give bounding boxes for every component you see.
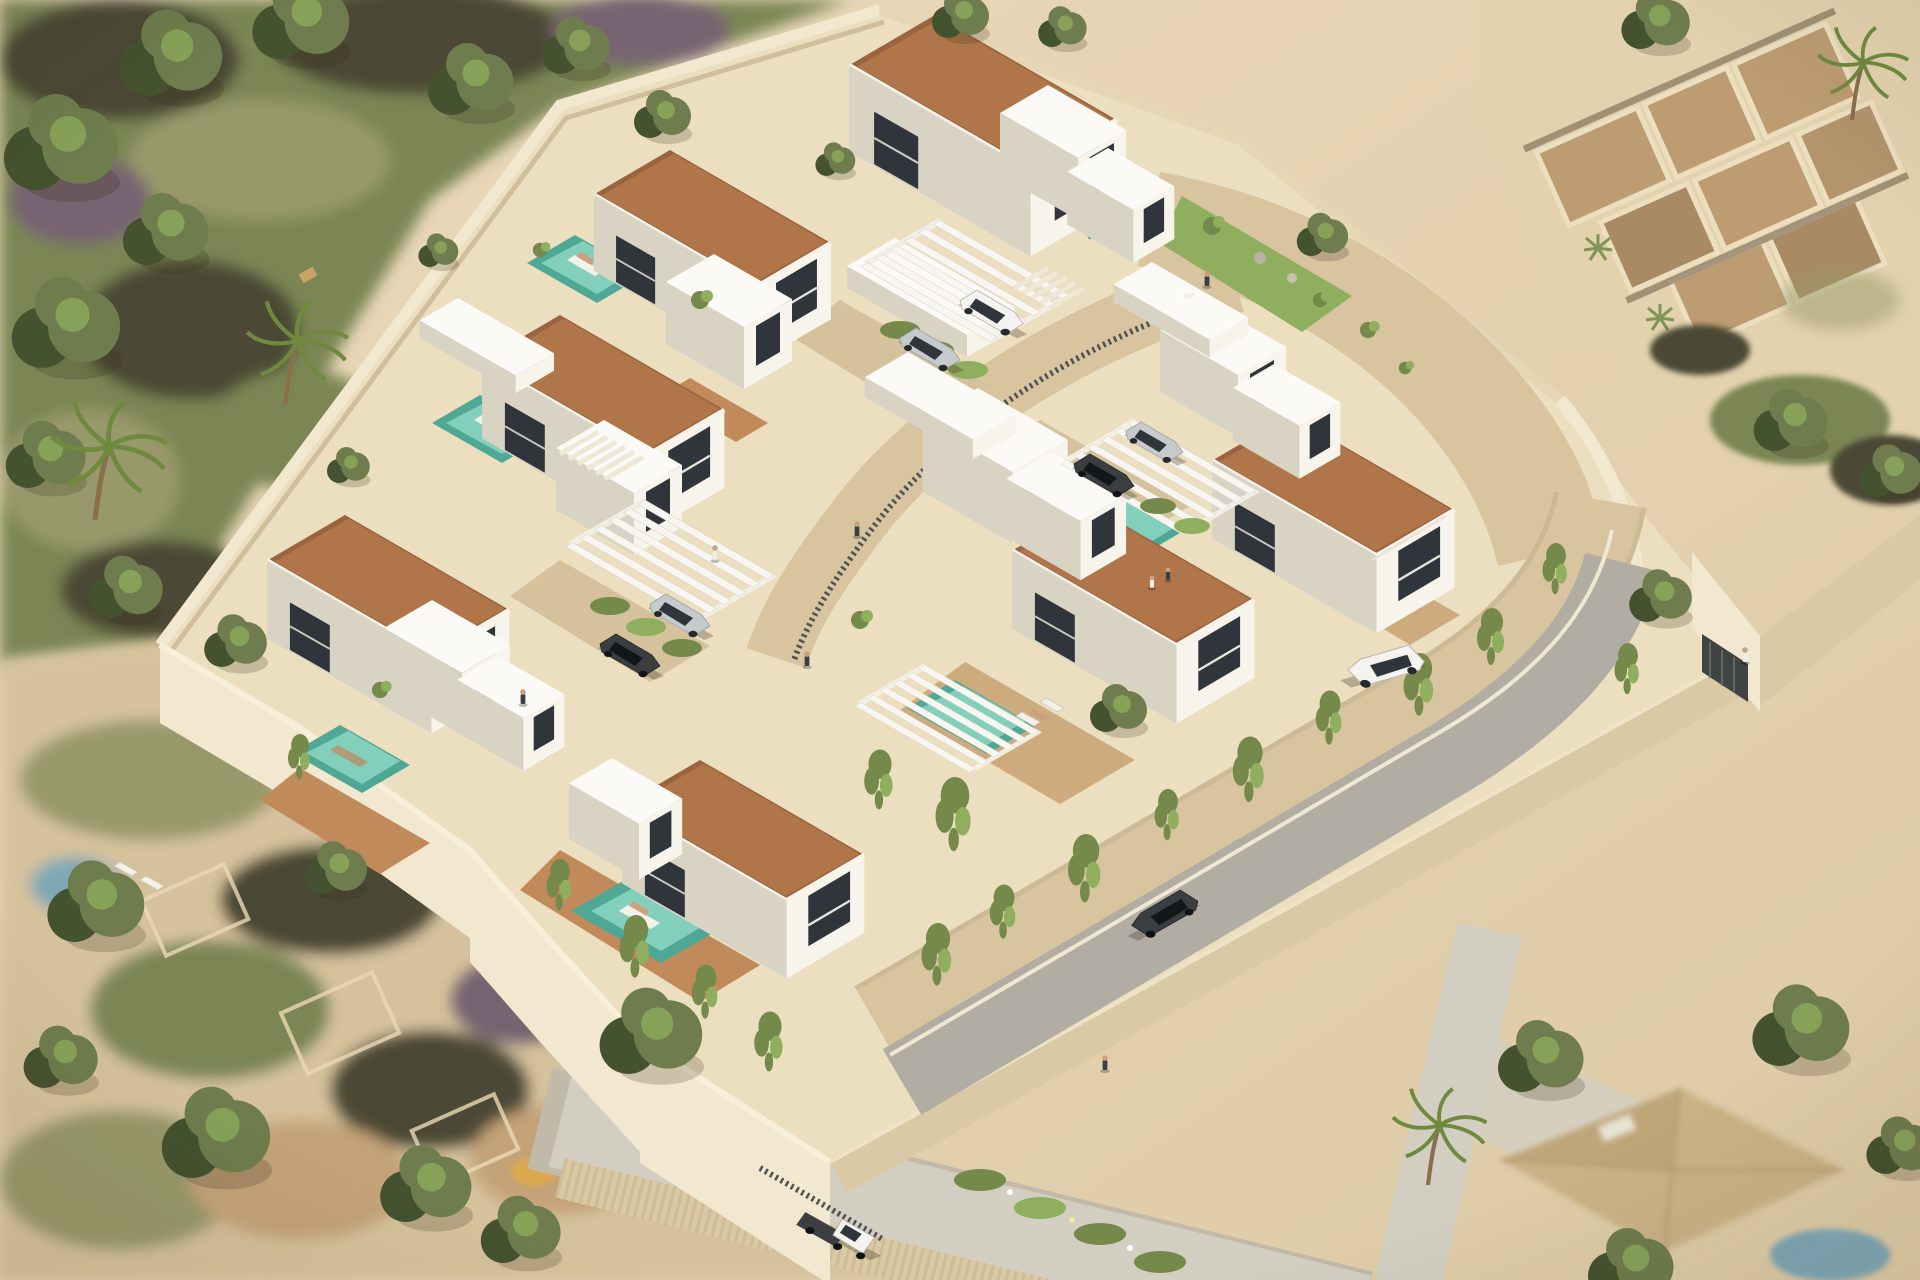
vignette-overlay [0, 0, 1920, 1280]
aerial-render-image [0, 0, 1920, 1280]
screenshot-root [0, 0, 1920, 1280]
